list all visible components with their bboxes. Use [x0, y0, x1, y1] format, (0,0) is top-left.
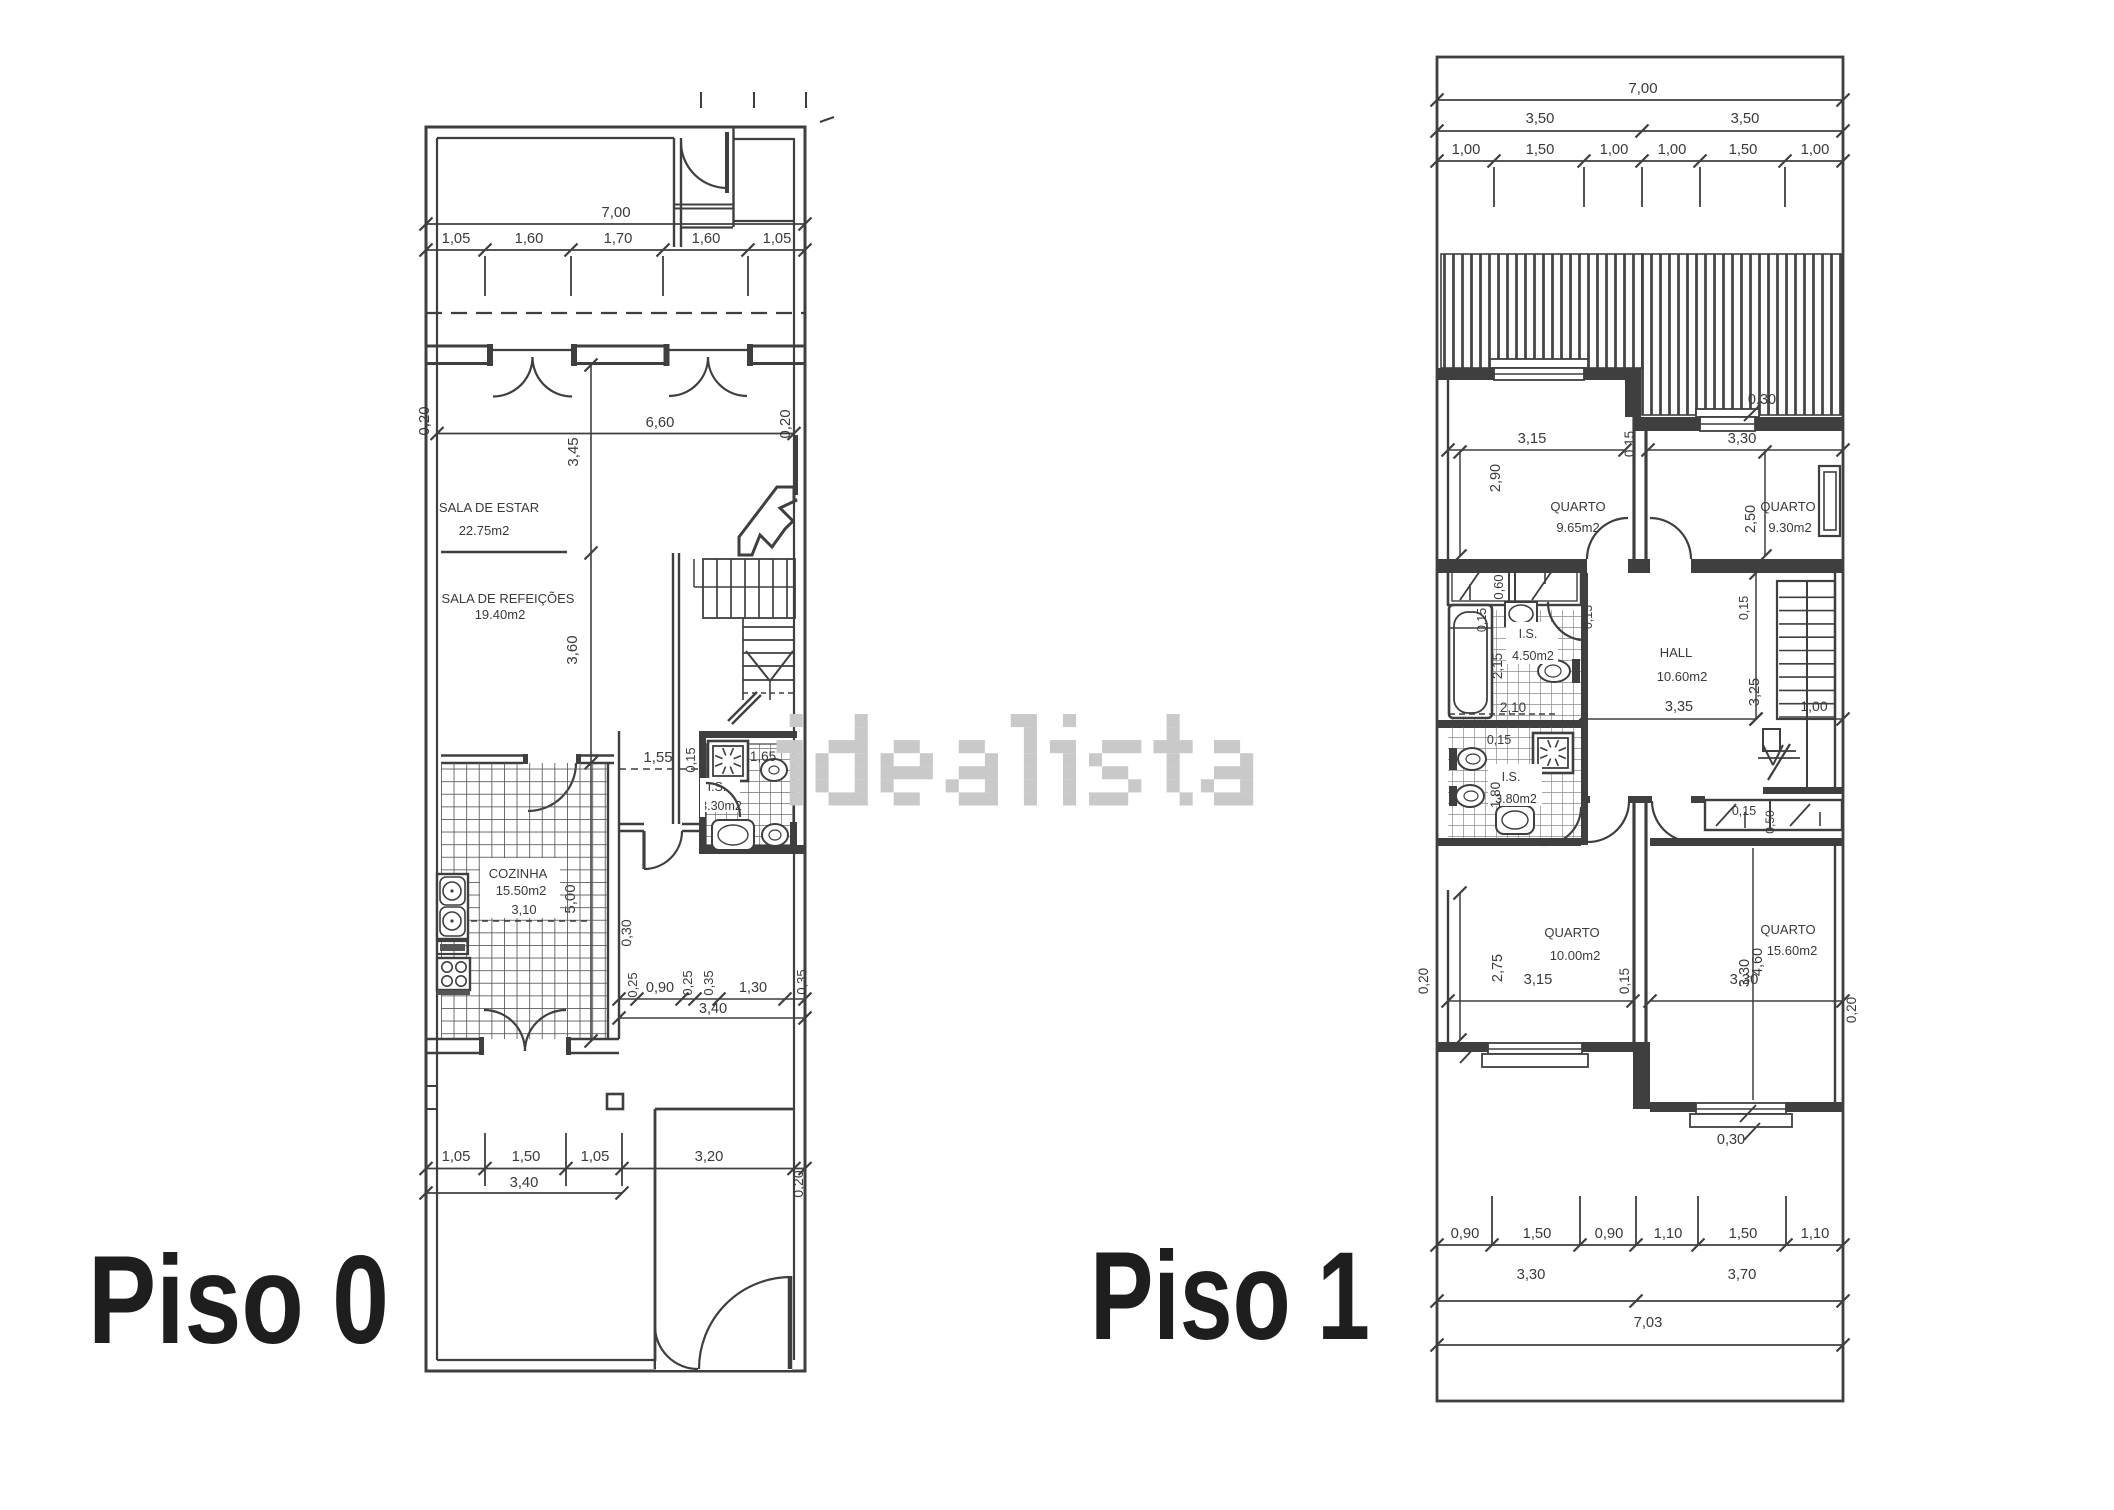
svg-text:0,60: 0,60 [1491, 574, 1506, 599]
svg-text:0,20: 0,20 [790, 1170, 806, 1197]
svg-text:9.30m2: 9.30m2 [1768, 520, 1811, 535]
svg-text:3,30: 3,30 [1517, 1267, 1546, 1283]
svg-text:3,30: 3,30 [1728, 431, 1757, 447]
svg-text:0,35: 0,35 [794, 969, 809, 994]
svg-text:COZINHA: COZINHA [489, 866, 548, 881]
svg-text:1,05: 1,05 [442, 231, 471, 247]
svg-text:1,60: 1,60 [692, 231, 721, 247]
svg-text:0,15: 0,15 [1487, 733, 1511, 747]
svg-text:0,25: 0,25 [625, 972, 640, 997]
svg-text:2,10: 2,10 [1500, 700, 1526, 715]
svg-text:QUARTO: QUARTO [1544, 925, 1599, 940]
svg-text:3,25: 3,25 [1747, 678, 1763, 706]
svg-text:7,00: 7,00 [601, 204, 630, 221]
svg-text:3,50: 3,50 [1526, 111, 1555, 127]
svg-text:3,50: 3,50 [1731, 111, 1760, 127]
svg-text:SALA DE ESTAR: SALA DE ESTAR [439, 500, 539, 515]
svg-text:QUARTO: QUARTO [1550, 499, 1605, 514]
svg-text:Piso 0: Piso 0 [88, 1231, 389, 1370]
svg-text:0,35: 0,35 [701, 970, 716, 995]
svg-text:0,30: 0,30 [618, 919, 634, 946]
svg-text:QUARTO: QUARTO [1760, 499, 1815, 514]
svg-text:1,50: 1,50 [1729, 1226, 1758, 1242]
svg-text:1,50: 1,50 [1523, 1226, 1552, 1242]
svg-text:0,90: 0,90 [1595, 1226, 1624, 1242]
svg-text:0,20: 0,20 [1844, 997, 1859, 1023]
svg-text:7,00: 7,00 [1628, 80, 1657, 97]
svg-text:1,05: 1,05 [763, 231, 792, 247]
svg-text:2,75: 2,75 [1490, 954, 1506, 982]
svg-text:1,60: 1,60 [515, 231, 544, 247]
svg-text:3,10: 3,10 [511, 902, 536, 917]
svg-text:0,30: 0,30 [1717, 1132, 1745, 1148]
svg-text:1,00: 1,00 [1658, 142, 1687, 158]
svg-text:0,15: 0,15 [1732, 804, 1756, 818]
svg-text:0,15: 0,15 [1475, 608, 1489, 632]
svg-text:1,50: 1,50 [512, 1149, 541, 1165]
svg-text:1,30: 1,30 [739, 980, 767, 996]
svg-text:Piso 1: Piso 1 [1090, 1227, 1370, 1366]
svg-text:3,45: 3,45 [565, 437, 582, 466]
svg-text:1,55: 1,55 [643, 749, 672, 766]
svg-text:0,20: 0,20 [777, 409, 794, 438]
svg-text:1,50: 1,50 [1526, 142, 1555, 158]
svg-text:0,30: 0,30 [1748, 392, 1776, 408]
svg-text:0,90: 0,90 [646, 980, 674, 996]
svg-text:I.S.: I.S. [1519, 627, 1538, 641]
svg-text:SALA DE REFEIÇÕES: SALA DE REFEIÇÕES [442, 591, 575, 606]
svg-text:10.60m2: 10.60m2 [1657, 669, 1708, 684]
svg-text:1,70: 1,70 [604, 231, 633, 247]
svg-text:3,15: 3,15 [1524, 972, 1553, 988]
svg-text:1,50: 1,50 [1729, 142, 1758, 158]
svg-text:2,50: 2,50 [1743, 505, 1759, 533]
svg-text:2,15: 2,15 [1490, 653, 1505, 679]
svg-text:3,40: 3,40 [699, 1001, 727, 1017]
svg-text:3,35: 3,35 [1665, 699, 1693, 715]
svg-text:1,00: 1,00 [1800, 698, 1827, 714]
svg-text:19.40m2: 19.40m2 [475, 607, 526, 622]
svg-text:3,15: 3,15 [1518, 431, 1547, 447]
svg-text:3,20: 3,20 [695, 1149, 724, 1165]
svg-text:0,20: 0,20 [1416, 968, 1431, 994]
svg-text:1,10: 1,10 [1801, 1226, 1830, 1242]
svg-text:3,30: 3,30 [1730, 972, 1759, 988]
svg-text:15.60m2: 15.60m2 [1767, 943, 1818, 958]
svg-text:1,05: 1,05 [581, 1149, 610, 1165]
svg-text:0,15: 0,15 [1581, 605, 1595, 629]
svg-text:3,70: 3,70 [1728, 1267, 1757, 1283]
svg-text:1,00: 1,00 [1801, 142, 1830, 158]
svg-text:6,60: 6,60 [646, 415, 675, 431]
svg-text:QUARTO: QUARTO [1760, 922, 1815, 937]
svg-text:15.50m2: 15.50m2 [496, 883, 547, 898]
svg-text:0,15: 0,15 [1737, 596, 1751, 620]
svg-text:7,03: 7,03 [1634, 1315, 1663, 1331]
svg-text:0,25: 0,25 [680, 970, 695, 995]
svg-text:HALL: HALL [1660, 645, 1693, 660]
svg-text:3,40: 3,40 [510, 1175, 539, 1191]
svg-text:1,05: 1,05 [442, 1149, 471, 1165]
svg-text:I.S.: I.S. [1502, 770, 1521, 784]
svg-text:0,15: 0,15 [1617, 968, 1632, 994]
svg-text:3,60: 3,60 [564, 635, 581, 664]
svg-text:2,90: 2,90 [1488, 464, 1504, 492]
svg-text:1,10: 1,10 [1654, 1226, 1683, 1242]
svg-text:22.75m2: 22.75m2 [459, 523, 510, 538]
svg-text:0,20: 0,20 [416, 406, 433, 435]
svg-text:9.65m2: 9.65m2 [1556, 520, 1599, 535]
svg-text:1,00: 1,00 [1452, 142, 1481, 158]
svg-text:4.50m2: 4.50m2 [1512, 649, 1554, 663]
svg-text:0,90: 0,90 [1451, 1226, 1480, 1242]
svg-text:0,50: 0,50 [1763, 810, 1777, 834]
svg-text:1,65: 1,65 [750, 749, 776, 764]
svg-text:1,80: 1,80 [1488, 782, 1503, 808]
svg-text:10.00m2: 10.00m2 [1550, 948, 1601, 963]
svg-text:1,00: 1,00 [1600, 142, 1629, 158]
